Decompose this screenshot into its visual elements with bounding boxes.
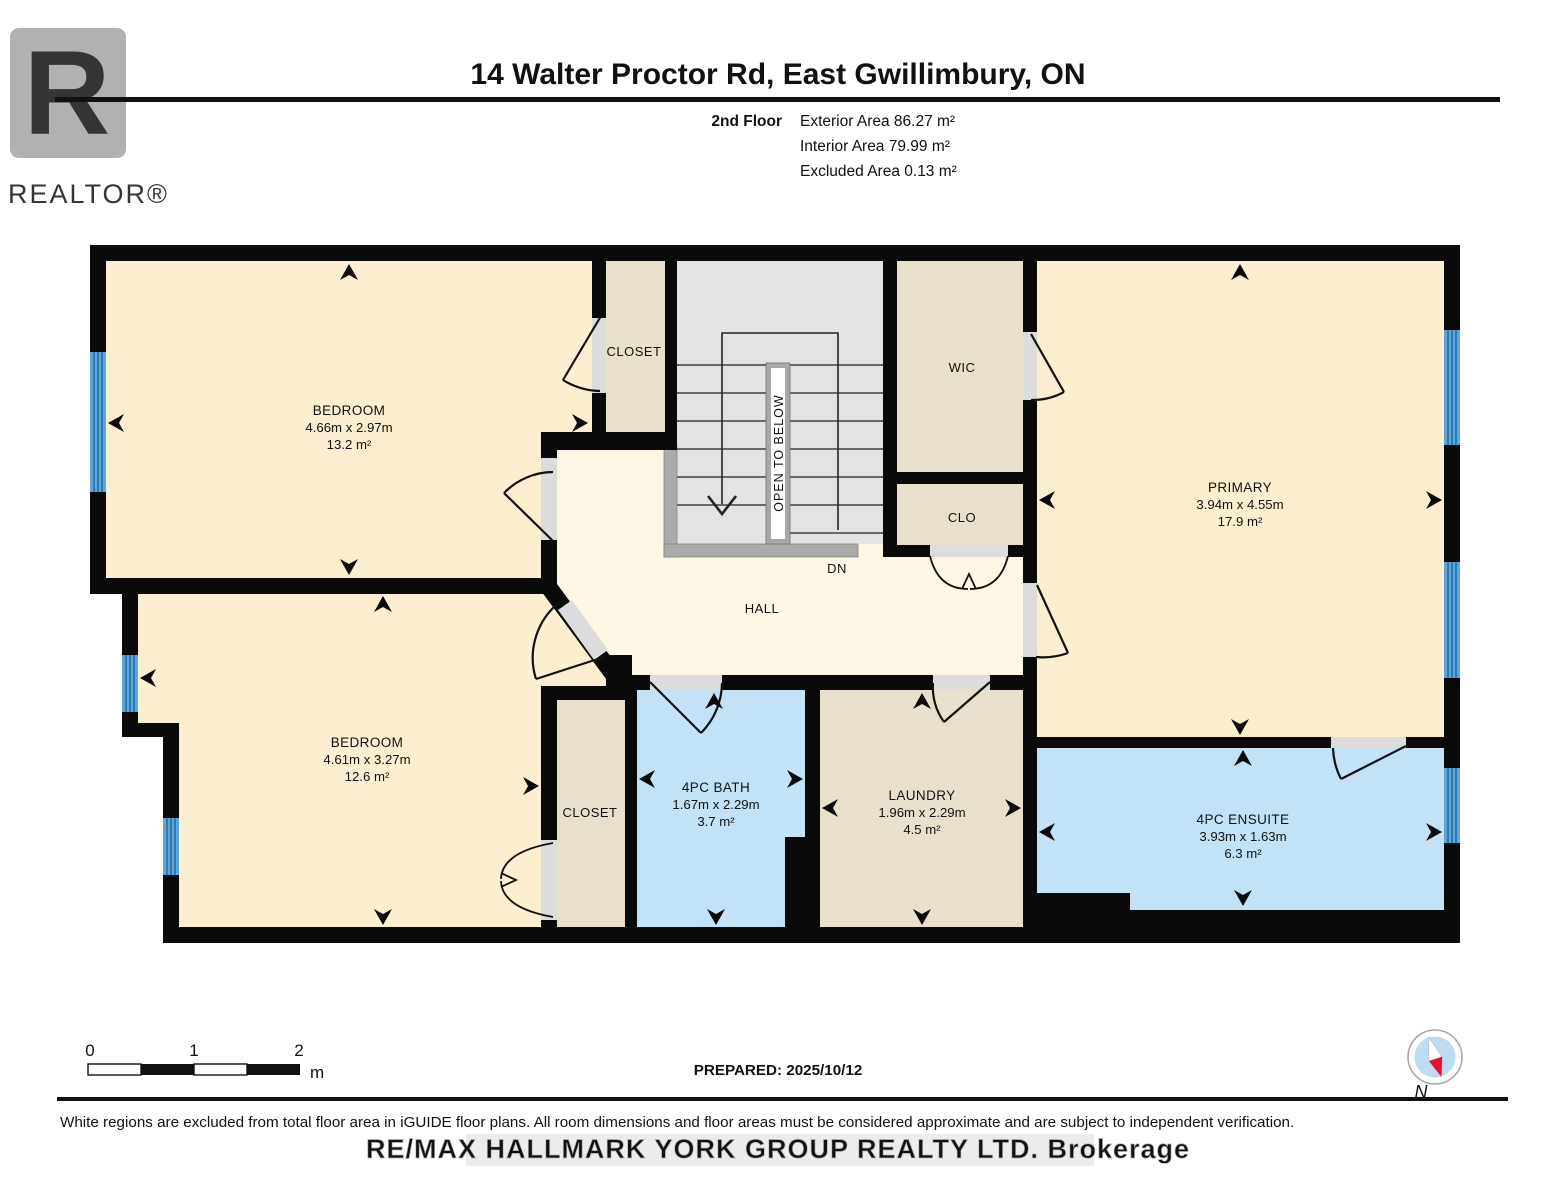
ensuite-name: 4PC ENSUITE [1197,812,1290,827]
compass-icon [1408,1030,1462,1084]
window-bedroom2-upper-icon [122,655,138,712]
bedroom2-name: BEDROOM [331,735,404,750]
closet-bottom-label: CLOSET [562,805,617,820]
bedroom1-area: 13.2 m² [327,437,372,452]
prepared-date: PREPARED: 2025/10/12 [694,1062,863,1079]
laundry-area: 4.5 m² [903,822,941,837]
scale-bar: 0 1 2 m [85,1041,324,1082]
stairs-dn-label: DN [827,561,847,576]
wic-label: WIC [949,360,976,375]
laundry-dims: 1.96m x 2.29m [878,805,965,820]
open-to-below-label: OPEN TO BELOW [772,394,786,511]
header-rule [55,97,1500,102]
bath-area: 3.7 m² [697,814,735,829]
exterior-area: Exterior Area 86.27 m² [800,113,955,130]
staircase: OPEN TO BELOW [664,261,883,557]
interior-area: Interior Area 79.99 m² [800,138,950,155]
brokerage-watermark: RE/MAX HALLMARK YORK GROUP REALTY LTD. B… [366,1134,1190,1166]
window-ensuite-icon [1444,768,1460,843]
bedroom1-dims: 4.66m x 2.97m [305,420,392,435]
hall-label: HALL [745,601,780,616]
floorplan-page: R REALTOR® 14 Walter Proctor Rd, East Gw… [0,0,1553,1200]
realtor-logo-letter: R [24,26,111,160]
window-primary-lower-icon [1444,562,1460,678]
window-bedroom2-lower-icon [163,818,179,875]
disclaimer-text: White regions are excluded from total fl… [60,1114,1294,1131]
floor-info: 2nd Floor Exterior Area 86.27 m² Interio… [711,113,956,180]
primary-area: 17.9 m² [1218,514,1263,529]
window-primary-upper-icon [1444,330,1460,445]
floor-label: 2nd Floor [711,113,782,130]
bath-dims: 1.67m x 2.29m [672,797,759,812]
laundry-name: LAUNDRY [888,788,955,803]
closet-top-label: CLOSET [606,344,661,359]
footer-rule [57,1097,1508,1101]
clo-label: CLO [948,510,976,525]
realtor-logo-text: REALTOR® [8,179,169,209]
scale-tick-2: 2 [294,1041,303,1060]
window-bedroom1-icon [90,352,106,492]
primary-name: PRIMARY [1208,480,1272,495]
watermark-text: RE/MAX HALLMARK YORK GROUP REALTY LTD. B… [366,1134,1190,1164]
bedroom2-dims: 4.61m x 3.27m [323,752,410,767]
ensuite-area: 6.3 m² [1224,846,1262,861]
primary-dims: 3.94m x 4.55m [1196,497,1283,512]
bedroom2-area: 12.6 m² [345,769,390,784]
scale-unit: m [310,1063,324,1082]
ensuite-dims: 3.93m x 1.63m [1199,829,1286,844]
excluded-area: Excluded Area 0.13 m² [800,163,957,180]
floorplan-canvas: R REALTOR® 14 Walter Proctor Rd, East Gw… [0,0,1553,1200]
realtor-logo: R REALTOR® [8,26,169,209]
bath-name: 4PC BATH [682,780,750,795]
scale-tick-0: 0 [85,1041,94,1060]
bedroom1-name: BEDROOM [313,403,386,418]
scale-tick-1: 1 [189,1041,198,1060]
page-title: 14 Walter Proctor Rd, East Gwillimbury, … [470,58,1085,91]
